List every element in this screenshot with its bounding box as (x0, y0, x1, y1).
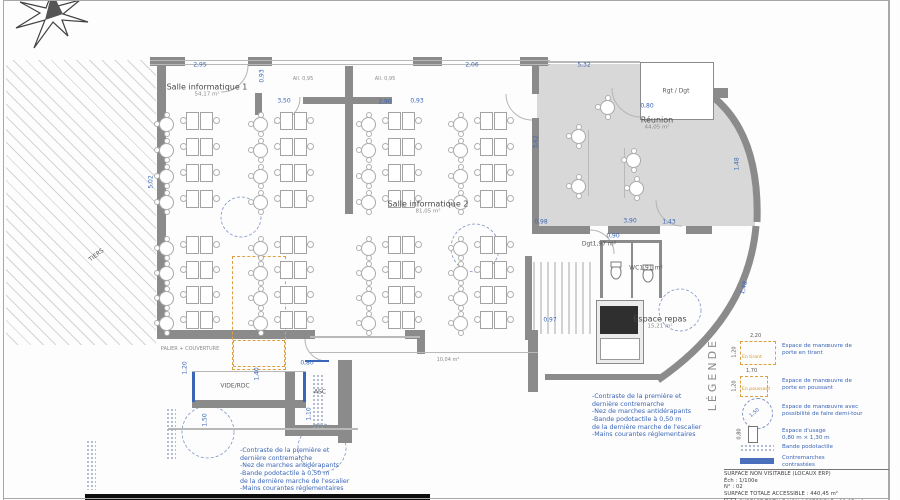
room-area: 44,05 m² (641, 124, 673, 130)
legend-dim-left: 0,80 (737, 428, 743, 439)
legend-dim-top: 2,20 (750, 333, 761, 339)
small-label: All. 0,95 (375, 77, 396, 83)
dimension-label: 1,50 (203, 413, 210, 426)
small-label: PALIER + COUVERTURE (161, 347, 220, 353)
legend-desc-line: porte en tirant (782, 350, 852, 357)
dimension-label: 3,90 (623, 219, 636, 226)
dimension-label: 5,32 (577, 63, 590, 70)
floor-plan-canvas: Salle informatique 154,17 m²Salle inform… (0, 0, 900, 500)
dimension-label: 0,90 (606, 234, 619, 241)
legend-desc-line: Bande podotactile (782, 444, 833, 451)
dimension-label: 0,98 (534, 220, 547, 227)
dimension-label: 0,93 (260, 69, 267, 82)
room-label: ASC (314, 390, 326, 397)
room-area: 1,91 m² (639, 265, 663, 272)
legend-desc-line: Espace de manœuvre de (782, 378, 852, 385)
legend-desc-line: 0,80 m × 1,30 m (782, 435, 830, 442)
dimension-label: 0,93 (410, 99, 423, 106)
dimension-label: 1,20 (183, 361, 190, 374)
legend-desc-line: possibilité de faire demi-tour (782, 411, 863, 418)
room-label: Espace repas15,21 m² (633, 314, 686, 330)
legend-swatch-contrast-bar (740, 458, 774, 464)
room-label: Réunion44,05 m² (641, 115, 673, 131)
legend-desc-line: Espace de manœuvre de (782, 343, 852, 350)
small-label: All. 0,95 (293, 77, 314, 83)
dimension-label: 1,40 (255, 367, 262, 380)
legend-dim-left: 1,20 (732, 346, 738, 357)
room-label: VIDE/RDC (220, 384, 249, 391)
legend-desc: Espace de manœuvre avecpossibilité de fa… (782, 404, 863, 418)
room-label: TIERS (88, 248, 106, 264)
dimension-label: 3,50 (277, 99, 290, 106)
dimension-label: 1,43 (662, 220, 675, 227)
legend-swatch-door-space (740, 341, 776, 365)
dimension-label: 5,02 (149, 175, 156, 188)
legend-desc-line: Espace d'usage (782, 428, 830, 435)
dimension-label: 2,06 (465, 63, 478, 70)
legend-dim-left: 1,20 (732, 380, 738, 391)
legend-desc: Bande podotactile (782, 444, 833, 451)
room-label: Salle informatique 281,05 m² (388, 199, 469, 215)
note-line: -Contraste de la première et (240, 447, 349, 455)
dimension-label: 2,95 (193, 63, 206, 70)
dimension-label: 1,10 (307, 407, 314, 420)
note-line: -Bande podotactile à 0,50 m (240, 470, 349, 478)
dimension-label: 2,90 (378, 100, 391, 107)
legend-desc: Espace de manœuvre deporte en tirant (782, 343, 852, 357)
legend-swatch-usage-space (748, 426, 758, 443)
note-line: -Nez de marches antidérapants (240, 462, 349, 470)
title-block-divider (724, 469, 889, 470)
title-block-row: Éch : 1/100e (724, 478, 889, 485)
legend-desc-line: Espace de manœuvre avec (782, 404, 863, 411)
title-block-row: SURFACE NON VISITABLE (LOCAUX ERP) (724, 471, 889, 478)
dimension-label: 1,48 (740, 281, 750, 296)
room-area: 54,17 m² (167, 91, 248, 97)
legend-title: LÉGENDE (706, 338, 720, 411)
dimension-label: 3,62 (534, 135, 541, 148)
room-area: 1,97 m² (593, 241, 617, 248)
note-line: -Mains courantes réglementaires (240, 485, 349, 493)
small-label: 10,04 m² (437, 358, 460, 364)
legend-desc: Espace d'usage0,80 m × 1,30 m (782, 428, 830, 442)
dimension-label: 0,80 (640, 104, 653, 111)
legend-desc: Espace de manœuvre deporte en poussant (782, 378, 852, 392)
legend-swatch-tag: En poussant (742, 387, 770, 392)
room-area: 81,05 m² (388, 208, 469, 214)
legend-dim-top: 1,70 (746, 368, 757, 374)
note-line: -Mains courantes réglementaires (592, 431, 701, 439)
note-block: -Contraste de la première etdernière con… (240, 447, 349, 493)
note-line: -Nez de marches antidérapants (592, 408, 701, 416)
title-block-row: N° : 02 (724, 484, 889, 491)
legend-desc: Contremarchescontrastées (782, 455, 825, 469)
room-area: 15,21 m² (633, 323, 686, 329)
legend-desc-line: Contremarches (782, 455, 825, 462)
dimension-label: 1,48 (735, 157, 742, 170)
legend-swatch-podotactile (740, 444, 774, 453)
note-line: -Bande podotactile à 0,50 m (592, 416, 701, 424)
legend-desc-line: contrastées (782, 462, 825, 469)
legend-swatch-tag: En tirant (742, 355, 762, 360)
title-block: SURFACE NON VISITABLE (LOCAUX ERP)Éch : … (724, 471, 889, 500)
title-block-row: SURFACE TOTALE ACCESSIBLE : 440,45 m² (724, 491, 889, 498)
legend-desc-line: porte en poussant (782, 385, 852, 392)
room-label: WC1,91 m² (629, 266, 663, 273)
dimension-label: 0,97 (543, 318, 556, 325)
room-label: Salle informatique 154,17 m² (167, 82, 248, 98)
room-label: Rgt / Dgt (663, 89, 690, 96)
room-label: Dgt1,97 m² (582, 242, 616, 249)
note-line: -Contraste de la première et (592, 393, 701, 401)
dimension-label: 0,80 (300, 361, 313, 368)
note-block: -Contraste de la première etdernière con… (592, 393, 701, 439)
